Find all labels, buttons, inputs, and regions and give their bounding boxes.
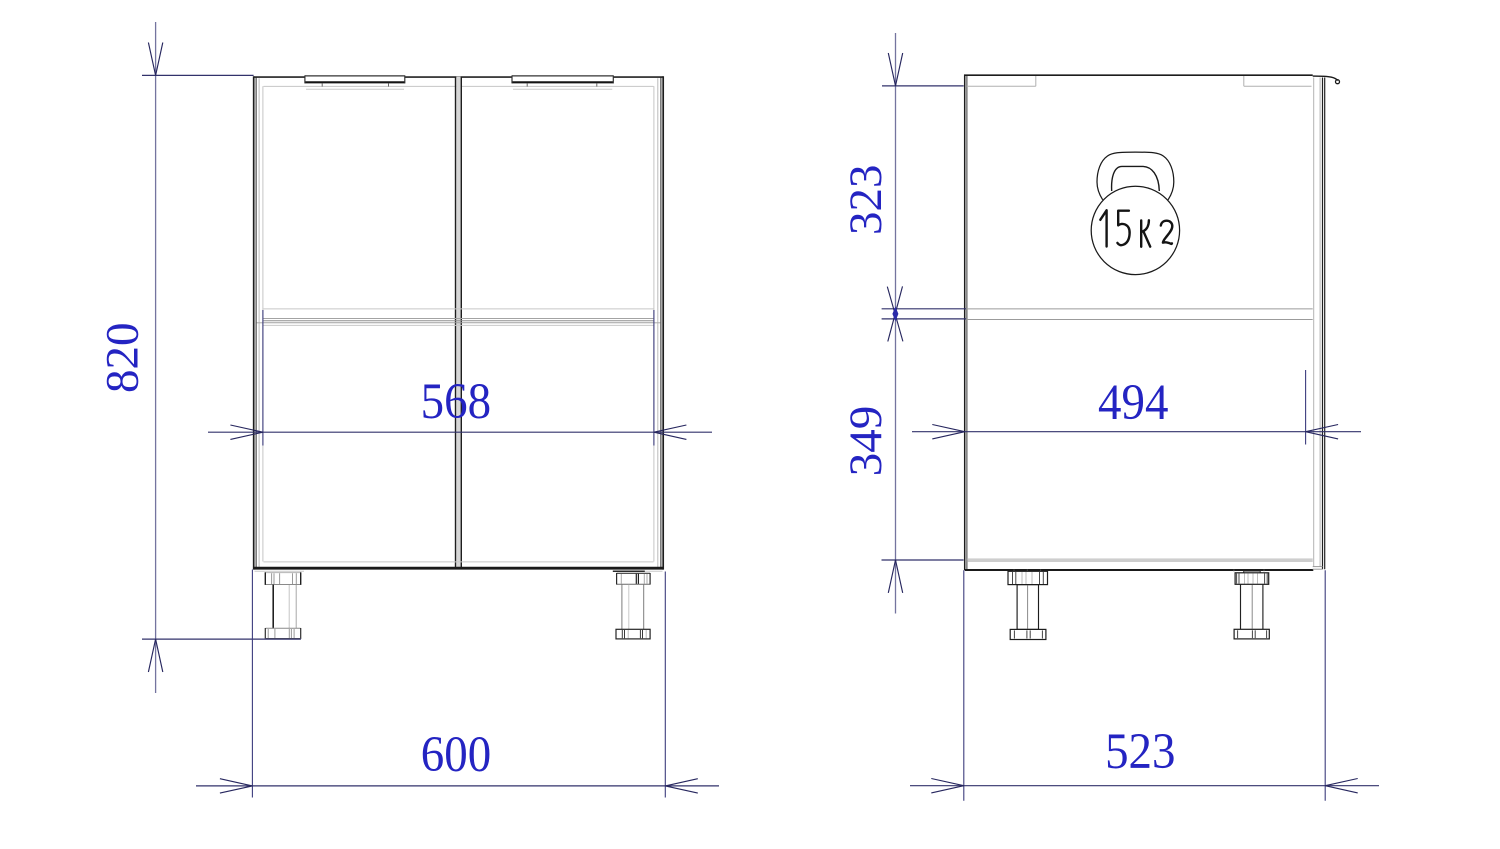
svg-text:600: 600 (421, 726, 491, 782)
svg-text:568: 568 (421, 374, 491, 430)
svg-text:494: 494 (1098, 374, 1168, 430)
svg-text:323: 323 (840, 164, 892, 235)
svg-text:523: 523 (1105, 723, 1175, 779)
svg-text:820: 820 (97, 322, 149, 393)
svg-text:349: 349 (840, 406, 892, 477)
